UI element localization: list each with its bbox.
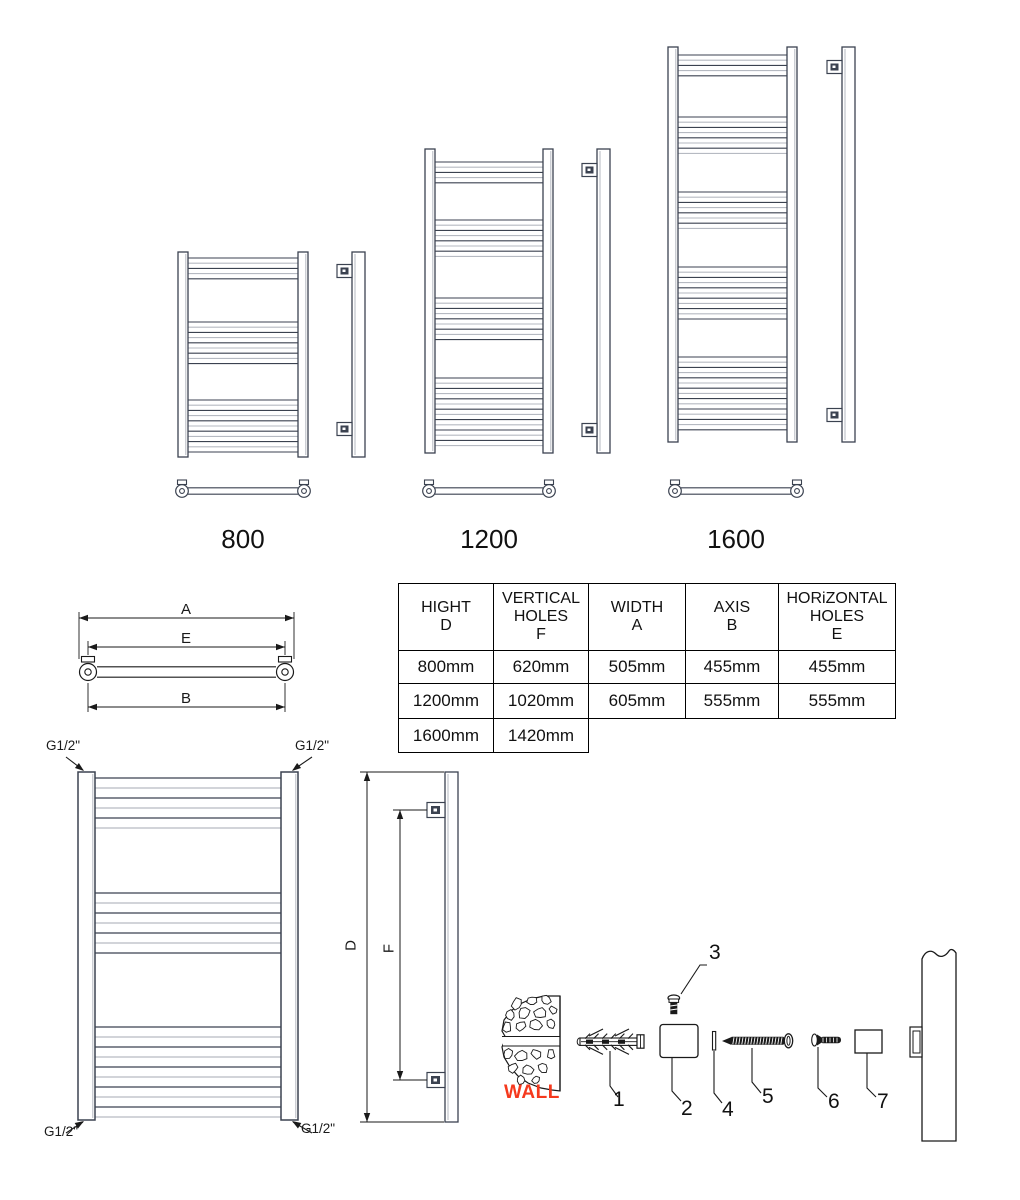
wall-label: WALL: [504, 1082, 560, 1104]
dim-label-F: F: [381, 939, 398, 959]
part-1-wall-plug: [577, 1029, 644, 1054]
wall-fragment: [502, 995, 560, 1091]
table-cell: 620mm: [494, 651, 589, 684]
side-view-dimension-drawing: [360, 772, 458, 1122]
table-cell: 1020mm: [494, 684, 589, 719]
part-label-6: 6: [828, 1090, 840, 1114]
dim-label-A: A: [171, 601, 201, 618]
col-header-horizontal-holes: HORiZONTAL HOLES E: [779, 584, 896, 651]
dim-label-D: D: [343, 936, 360, 956]
towel-radiator-technical-drawing: 800 1200 1600 HIGHT D VERTICAL HOLES F W…: [0, 0, 1020, 1200]
part-2-bracket-housing: [660, 1025, 698, 1058]
table-cell: 605mm: [589, 684, 686, 719]
size-label-1200: 1200: [419, 524, 559, 555]
radiator-800-side: [337, 252, 365, 457]
col-header-vertical-holes: VERTICAL HOLES F: [494, 584, 589, 651]
col-header-width: WIDTH A: [589, 584, 686, 651]
table-cell: 455mm: [686, 651, 779, 684]
dim-label-E: E: [171, 630, 201, 647]
radiator-1200-top-view: [423, 480, 556, 497]
table-empty-cell: [589, 719, 686, 753]
dim-label-B: B: [171, 690, 201, 707]
part-label-7: 7: [877, 1090, 889, 1114]
table-cell: 1200mm: [399, 684, 494, 719]
part-label-5: 5: [762, 1085, 774, 1109]
thread-label-top-right: G1/2": [295, 738, 329, 753]
part-label-2: 2: [681, 1097, 693, 1121]
part-6-countersunk-screw: [812, 1034, 841, 1046]
radiator-1600-top-view: [669, 480, 804, 497]
part-label-3: 3: [709, 941, 721, 965]
radiator-1600-side: [827, 47, 855, 442]
size-label-800: 800: [173, 524, 313, 555]
table-cell: 800mm: [399, 651, 494, 684]
dimensions-table: HIGHT D VERTICAL HOLES F WIDTH A AXIS B …: [398, 583, 896, 753]
table-cell: 555mm: [779, 684, 896, 719]
thread-label-bottom-right: G1/2": [301, 1121, 335, 1136]
part-7-cover-cap: [855, 1030, 882, 1053]
size-label-1600: 1600: [666, 524, 806, 555]
radiator-1600-front: [668, 47, 797, 442]
radiator-800-top-view: [176, 480, 311, 497]
thread-label-top-left: G1/2": [46, 738, 80, 753]
table-empty-cell: [779, 719, 896, 753]
thread-label-bottom-left: G1/2": [44, 1124, 78, 1139]
part-5-long-screw: [722, 1034, 793, 1048]
col-header-axis: AXIS B: [686, 584, 779, 651]
table-cell: 505mm: [589, 651, 686, 684]
front-view-large: [78, 772, 298, 1120]
col-header-height: HIGHT D: [399, 584, 494, 651]
table-cell: 455mm: [779, 651, 896, 684]
radiator-rail-section: [910, 950, 956, 1141]
table-cell: 1420mm: [494, 719, 589, 753]
part-4-washer: [713, 1032, 716, 1051]
part-label-1: 1: [613, 1088, 625, 1112]
part-label-4: 4: [722, 1098, 734, 1122]
table-cell: 1600mm: [399, 719, 494, 753]
radiator-1200-side: [582, 149, 610, 453]
table-empty-cell: [686, 719, 779, 753]
part-leader-lines: [610, 965, 876, 1103]
part-3-screw: [668, 995, 680, 1014]
radiator-800-front: [178, 252, 308, 457]
radiator-1200-front: [425, 149, 553, 453]
table-cell: 555mm: [686, 684, 779, 719]
